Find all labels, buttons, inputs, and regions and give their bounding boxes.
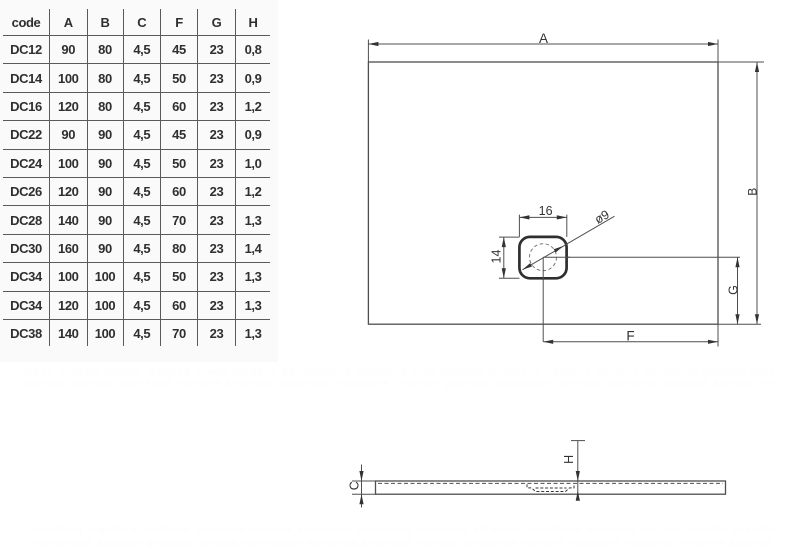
svg-text:C: C: [347, 481, 361, 490]
svg-text:B: B: [745, 188, 759, 196]
svg-text:ø9: ø9: [592, 207, 612, 226]
svg-text:H: H: [562, 455, 576, 464]
svg-text:A: A: [539, 31, 548, 46]
svg-text:14: 14: [490, 250, 504, 264]
svg-text:16: 16: [539, 204, 553, 218]
svg-text:G: G: [726, 285, 740, 295]
svg-text:F: F: [626, 328, 634, 343]
